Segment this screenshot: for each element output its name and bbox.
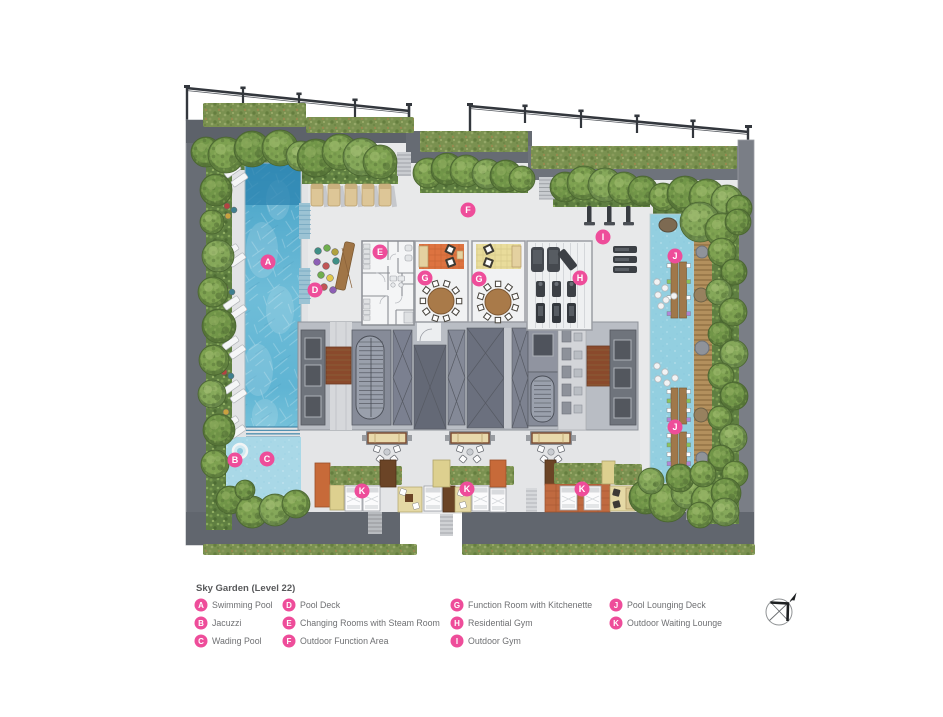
svg-text:I: I	[456, 637, 458, 646]
svg-text:Changing Rooms with Steam Room: Changing Rooms with Steam Room	[300, 618, 440, 628]
svg-text:C: C	[198, 637, 204, 646]
svg-text:Residential Gym: Residential Gym	[468, 618, 533, 628]
svg-text:K: K	[579, 484, 586, 494]
svg-text:C: C	[264, 454, 271, 464]
svg-text:F: F	[287, 637, 292, 646]
svg-text:H: H	[577, 273, 584, 283]
svg-text:F: F	[465, 205, 471, 215]
svg-text:E: E	[286, 619, 292, 628]
svg-text:G: G	[454, 601, 460, 610]
svg-text:G: G	[421, 273, 428, 283]
svg-text:B: B	[198, 619, 204, 628]
svg-text:J: J	[614, 601, 618, 610]
svg-text:E: E	[377, 247, 383, 257]
svg-text:Outdoor Waiting Lounge: Outdoor Waiting Lounge	[627, 618, 722, 628]
svg-text:H: H	[454, 619, 460, 628]
svg-text:Swimming Pool: Swimming Pool	[212, 600, 273, 610]
svg-text:K: K	[359, 486, 366, 496]
svg-text:Outdoor Function Area: Outdoor Function Area	[300, 636, 389, 646]
svg-text:A: A	[198, 601, 204, 610]
svg-text:J: J	[672, 251, 677, 261]
svg-text:K: K	[613, 619, 619, 628]
svg-text:A: A	[265, 257, 272, 267]
svg-text:Outdoor Gym: Outdoor Gym	[468, 636, 521, 646]
svg-text:J: J	[672, 422, 677, 432]
svg-text:Pool Lounging Deck: Pool Lounging Deck	[627, 600, 706, 610]
svg-text:K: K	[464, 484, 471, 494]
svg-text:G: G	[475, 274, 482, 284]
svg-text:Jacuzzi: Jacuzzi	[212, 618, 241, 628]
svg-text:D: D	[286, 601, 292, 610]
svg-text:D: D	[312, 285, 319, 295]
svg-text:Sky Garden (Level 22): Sky Garden (Level 22)	[196, 583, 295, 594]
svg-text:Pool Deck: Pool Deck	[300, 600, 341, 610]
svg-text:I: I	[602, 232, 605, 242]
svg-text:Wading Pool: Wading Pool	[212, 636, 262, 646]
svg-text:Function Room with Kitchenette: Function Room with Kitchenette	[468, 600, 592, 610]
svg-text:B: B	[232, 455, 239, 465]
